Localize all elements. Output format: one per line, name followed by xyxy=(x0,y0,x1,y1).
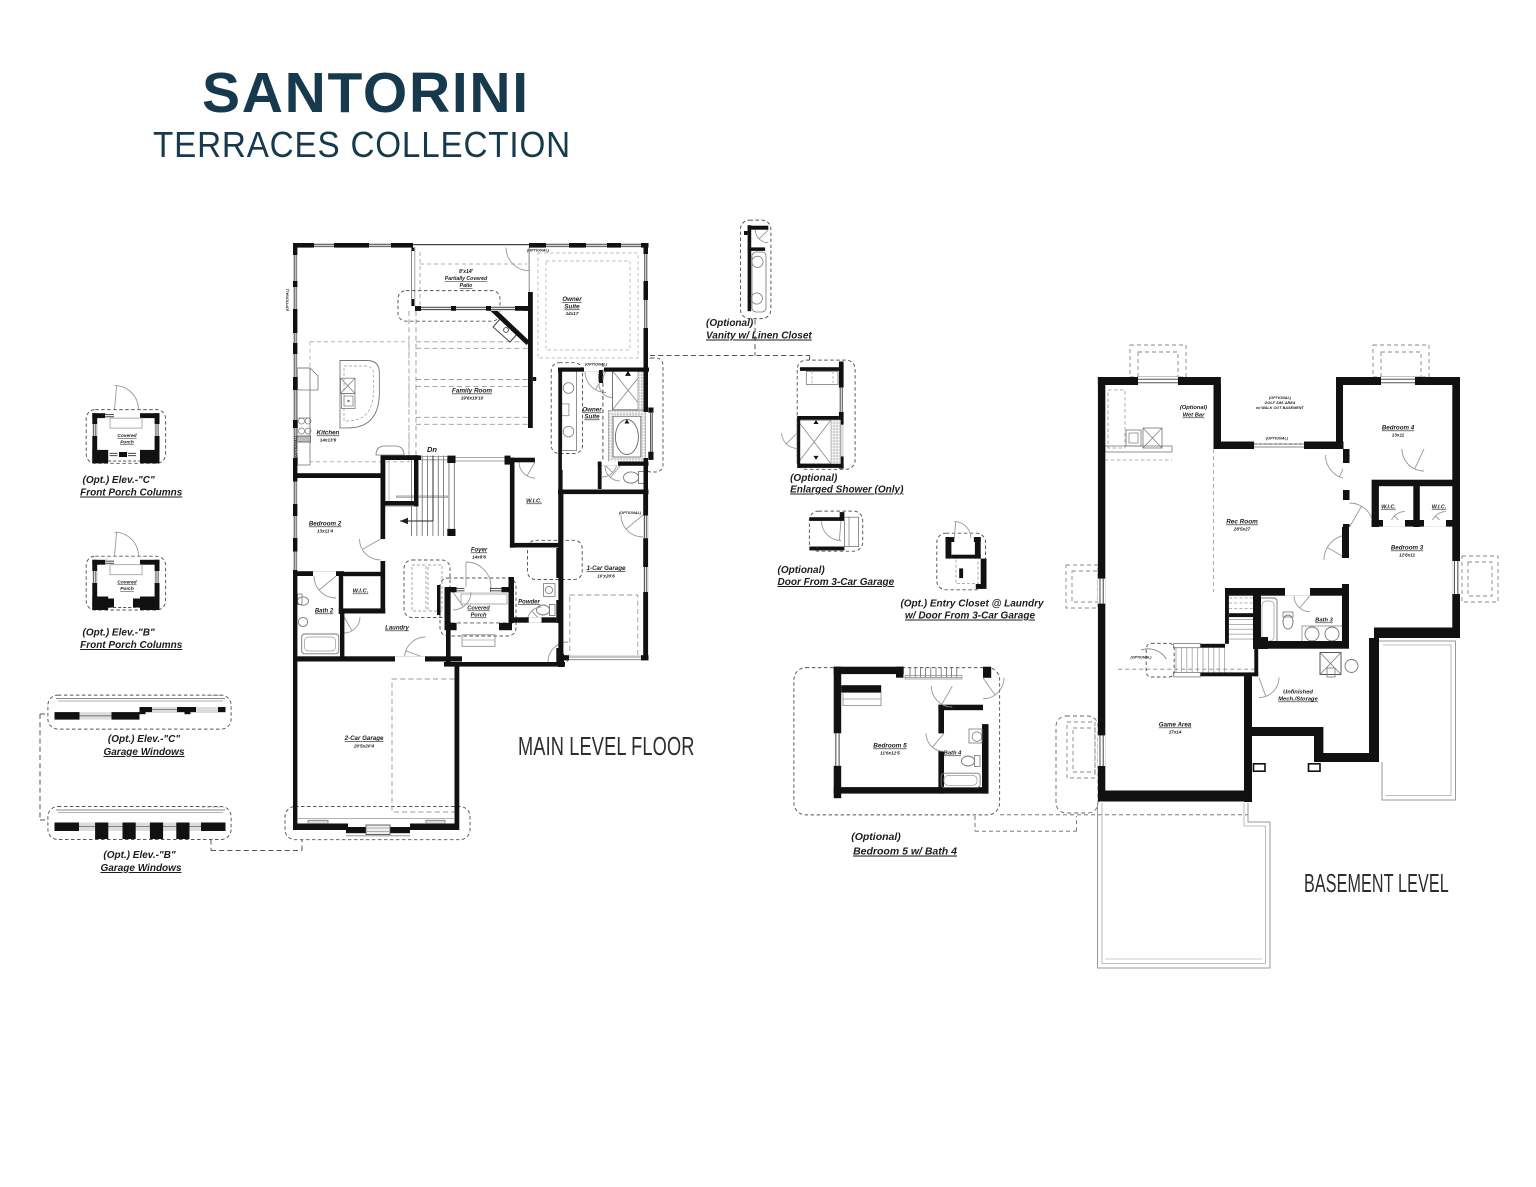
svg-text:(Opt.) Elev.-"B": (Opt.) Elev.-"B" xyxy=(83,628,156,639)
svg-text:Porch: Porch xyxy=(120,440,134,446)
svg-text:(OPT.): (OPT.) xyxy=(598,371,602,382)
svg-text:Vanity w/ Linen Closet: Vanity w/ Linen Closet xyxy=(706,331,812,342)
svg-text:Door From 3-Car Garage: Door From 3-Car Garage xyxy=(778,577,895,588)
svg-text:(OPTIONAL): (OPTIONAL) xyxy=(1269,396,1292,400)
svg-text:13x11'4: 13x11'4 xyxy=(317,529,334,534)
svg-text:Front Porch Columns: Front Porch Columns xyxy=(80,640,183,651)
svg-text:Rec Room: Rec Room xyxy=(1226,519,1258,526)
svg-text:2-Car Garage: 2-Car Garage xyxy=(344,735,384,742)
svg-text:19'6x19'10: 19'6x19'10 xyxy=(461,396,484,401)
svg-text:Game Area: Game Area xyxy=(1159,722,1192,729)
svg-text:Owner: Owner xyxy=(562,296,582,303)
svg-text:(Opt.) Entry Closet @ Laundry: (Opt.) Entry Closet @ Laundry xyxy=(900,599,1044,610)
svg-text:13x11: 13x11 xyxy=(1392,433,1405,438)
svg-text:Dn: Dn xyxy=(427,445,437,454)
svg-text:Foyer: Foyer xyxy=(471,548,488,554)
svg-text:Garage Windows: Garage Windows xyxy=(103,747,184,758)
svg-text:Garage Windows: Garage Windows xyxy=(100,863,181,874)
svg-text:Enlarged Shower (Only): Enlarged Shower (Only) xyxy=(790,485,904,496)
svg-text:1-Car Garage: 1-Car Garage xyxy=(587,565,626,572)
svg-text:(OPTIONAL): (OPTIONAL) xyxy=(1131,656,1153,660)
svg-text:Suite: Suite xyxy=(564,304,580,311)
svg-text:Mech./Storage: Mech./Storage xyxy=(1278,697,1318,703)
svg-text:W.I.C.: W.I.C. xyxy=(353,589,369,595)
svg-text:(Optional): (Optional) xyxy=(851,831,901,843)
svg-text:Patio: Patio xyxy=(460,283,473,289)
svg-text:GOLF SIM. AREA: GOLF SIM. AREA xyxy=(1264,401,1295,405)
svg-text:28'5x27: 28'5x27 xyxy=(1233,527,1251,532)
svg-text:12'6x11: 12'6x11 xyxy=(1399,553,1416,558)
svg-text:W.I.C.: W.I.C. xyxy=(1381,505,1396,511)
svg-text:14x17: 14x17 xyxy=(566,311,579,316)
svg-text:17x14: 17x14 xyxy=(1169,730,1182,735)
svg-text:11'6x12'5: 11'6x12'5 xyxy=(880,751,900,756)
svg-text:w/ WALK OUT BASEMENT: w/ WALK OUT BASEMENT xyxy=(1256,406,1304,410)
svg-text:(Opt.) Elev.-"B": (Opt.) Elev.-"B" xyxy=(103,850,176,861)
svg-text:Partially Covered: Partially Covered xyxy=(445,276,488,282)
svg-text:14x8'6: 14x8'6 xyxy=(472,555,486,560)
svg-text:(Optional): (Optional) xyxy=(778,565,826,576)
svg-text:Bedroom 5 w/ Bath 4: Bedroom 5 w/ Bath 4 xyxy=(853,846,957,858)
svg-text:(OPTIONAL): (OPTIONAL) xyxy=(286,288,290,311)
svg-text:Front Porch Columns: Front Porch Columns xyxy=(80,488,183,499)
svg-text:(Optional): (Optional) xyxy=(790,473,838,484)
svg-text:Bath 4: Bath 4 xyxy=(944,751,962,757)
svg-text:(OPTIONAL): (OPTIONAL) xyxy=(585,362,608,366)
svg-text:Owner: Owner xyxy=(582,407,602,414)
svg-text:(OPTIONAL): (OPTIONAL) xyxy=(1266,437,1289,441)
svg-text:Covered: Covered xyxy=(117,433,137,439)
svg-text:(OPTIONAL): (OPTIONAL) xyxy=(294,435,298,458)
svg-text:Bath 3: Bath 3 xyxy=(1315,618,1333,624)
svg-text:Powder: Powder xyxy=(518,599,540,605)
svg-text:(OPTIONAL): (OPTIONAL) xyxy=(527,249,550,253)
svg-text:Wet Bar: Wet Bar xyxy=(1183,413,1206,419)
svg-text:Kitchen: Kitchen xyxy=(317,430,340,437)
svg-text:Porch: Porch xyxy=(120,586,134,592)
svg-text:Suite: Suite xyxy=(584,414,600,421)
svg-text:Bedroom 4: Bedroom 4 xyxy=(1382,425,1415,432)
svg-text:(Opt.) Elev.-"C": (Opt.) Elev.-"C" xyxy=(83,475,156,486)
svg-text:Bedroom 3: Bedroom 3 xyxy=(1391,545,1424,552)
svg-text:w/ Door From 3-Car Garage: w/ Door From 3-Car Garage xyxy=(905,611,1035,622)
svg-text:Covered: Covered xyxy=(467,606,490,612)
svg-text:(Optional): (Optional) xyxy=(706,318,754,329)
svg-text:Laundry: Laundry xyxy=(385,626,409,632)
svg-text:8'x14': 8'x14' xyxy=(459,269,474,275)
svg-text:W.I.C.: W.I.C. xyxy=(1432,505,1447,511)
svg-text:Family Room: Family Room xyxy=(452,388,492,395)
svg-text:Bath 2: Bath 2 xyxy=(315,609,334,615)
svg-text:Bedroom 5: Bedroom 5 xyxy=(873,743,907,750)
svg-text:14x13'6: 14x13'6 xyxy=(320,438,337,443)
svg-text:(OPTIONAL): (OPTIONAL) xyxy=(619,511,642,515)
svg-text:(Optional): (Optional) xyxy=(1180,405,1207,411)
svg-text:Unfinished: Unfinished xyxy=(1283,690,1313,696)
svg-text:Porch: Porch xyxy=(471,613,487,619)
svg-text:20'5x20'4: 20'5x20'4 xyxy=(353,744,375,749)
svg-text:W.I.C.: W.I.C. xyxy=(526,499,542,505)
svg-text:10'x20'6: 10'x20'6 xyxy=(597,574,615,579)
svg-text:Bedroom 2: Bedroom 2 xyxy=(309,521,342,528)
svg-text:Covered: Covered xyxy=(117,580,137,586)
svg-text:(Opt.) Elev.-"C": (Opt.) Elev.-"C" xyxy=(108,734,181,745)
